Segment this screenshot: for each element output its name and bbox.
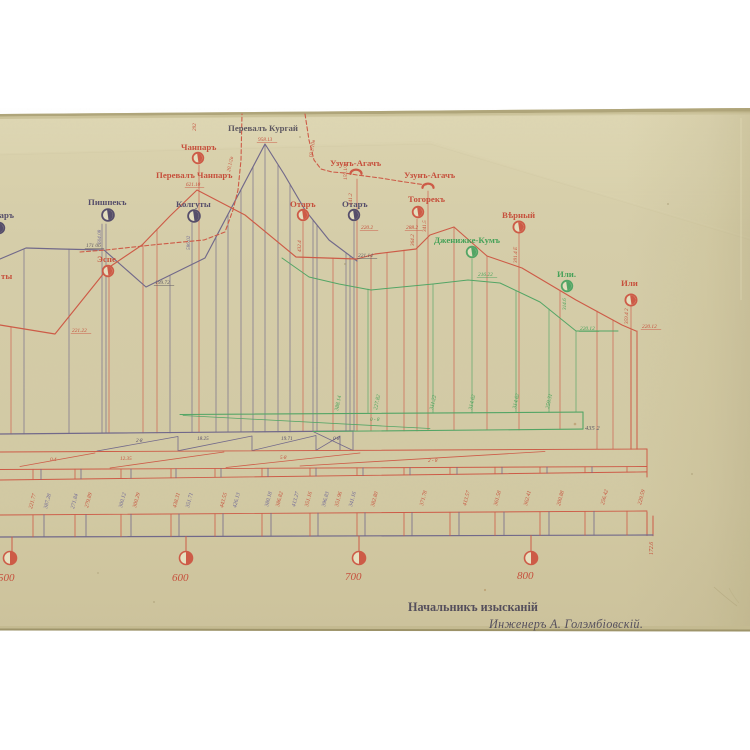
- svg-text:Инженеръ А. Голэмбіовскій.: Инженеръ А. Голэмбіовскій.: [488, 617, 643, 631]
- svg-text:Начальникъ изысканій: Начальникъ изысканій: [408, 600, 538, 614]
